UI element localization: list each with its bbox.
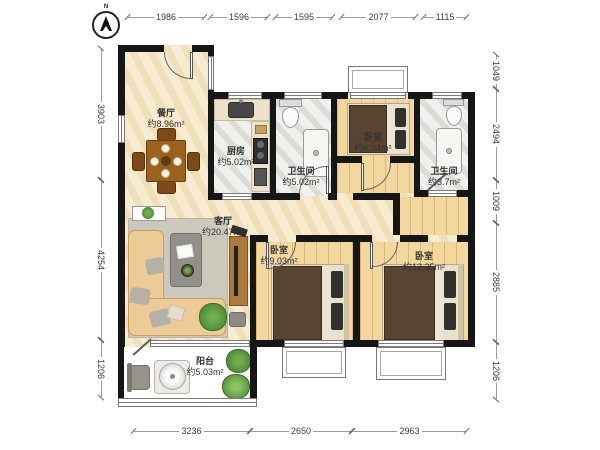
wall — [393, 193, 400, 235]
toilet-tank — [443, 99, 464, 106]
floor-plant-icon — [199, 303, 227, 331]
wall — [344, 340, 378, 347]
floor-plan: N — [0, 0, 600, 450]
dimension-top-2: 1596 — [210, 10, 268, 24]
wall — [331, 92, 337, 200]
wall — [444, 340, 470, 347]
kitchen-faucet — [239, 99, 243, 103]
washing-machine-dot — [170, 374, 175, 379]
dining-plate — [161, 144, 170, 153]
dining-chair-bottom — [157, 181, 176, 194]
wall — [408, 92, 432, 99]
wall — [457, 190, 470, 197]
wall — [118, 52, 125, 115]
cutting-board — [255, 125, 267, 134]
stove-burner — [257, 141, 264, 148]
tv-screen — [234, 246, 238, 296]
bay-sill — [350, 92, 406, 99]
coffee-table-plant — [181, 264, 194, 277]
room-label-living: 客厅约20.47m² — [202, 216, 244, 239]
kitchen-sink — [228, 102, 254, 118]
dining-plate — [173, 157, 182, 166]
dining-bowl — [161, 156, 171, 166]
wall — [270, 92, 276, 200]
bed-sheet — [435, 266, 443, 340]
wall — [468, 92, 475, 347]
wall — [208, 45, 214, 56]
bay-window-glass — [286, 351, 342, 374]
bay-sill — [284, 340, 344, 347]
balcony-chair — [130, 365, 150, 390]
dimension-bottom-3: 2963 — [352, 424, 467, 438]
dimension-right-3: 1009 — [489, 180, 503, 223]
room-label-dining: 餐厅约8.96m² — [147, 108, 184, 131]
dimension-top-1: 1986 — [127, 10, 205, 24]
compass-arrow-notch — [102, 26, 110, 32]
sofa-cushion — [129, 287, 151, 306]
bay-window-south-east — [376, 347, 446, 380]
bed-headboard — [344, 264, 349, 342]
bed-pillow — [395, 130, 406, 149]
wall — [296, 235, 372, 242]
bathroom-east-doorway-sill — [428, 190, 457, 197]
floor-vestibule — [398, 197, 468, 235]
dimension-right-2: 2494 — [489, 89, 503, 180]
shower-drain — [313, 150, 319, 156]
dimension-top-3: 1595 — [275, 10, 333, 24]
tv-cabinet — [229, 236, 248, 306]
dimension-right-1: 1049 — [489, 54, 503, 89]
shower-drain — [446, 148, 452, 154]
room-label-balcony: 阳台约5.03m² — [186, 356, 223, 379]
window — [228, 92, 262, 99]
dimension-left-3: 1206 — [94, 340, 108, 398]
bed-pillow — [444, 271, 456, 298]
room-label-bedroom-mid: 卧室约9.03m² — [260, 245, 297, 268]
balcony-sliding-window — [150, 340, 250, 347]
balcony-plant-icon — [222, 374, 250, 399]
bay-window-glass — [380, 351, 442, 376]
bed-blanket — [384, 266, 435, 340]
window — [432, 92, 462, 99]
dining-chair-left — [132, 152, 145, 171]
bed-headboard — [458, 264, 463, 342]
wall — [337, 156, 362, 163]
wall — [214, 193, 222, 200]
dining-chair-right — [187, 152, 200, 171]
balcony-outer-window — [118, 398, 257, 407]
wall — [214, 92, 228, 99]
bed-pillow — [331, 303, 343, 330]
stool — [229, 312, 246, 327]
dimension-top-4: 2077 — [341, 10, 416, 24]
wall — [390, 156, 414, 163]
compass-icon: N — [92, 11, 120, 39]
wall — [118, 347, 124, 400]
dimension-bottom-1: 3236 — [133, 424, 250, 438]
wall — [208, 90, 214, 200]
window — [118, 115, 125, 143]
dimension-right-4: 2885 — [489, 223, 503, 342]
bed-pillow — [444, 303, 456, 330]
wall — [256, 340, 284, 347]
balcony-chair-back — [127, 363, 132, 392]
wall — [400, 235, 428, 242]
balcony-plant-icon — [226, 349, 251, 373]
bed-pillow — [395, 108, 406, 127]
bed-pillow — [331, 271, 343, 298]
potted-plant-icon — [142, 207, 154, 219]
bay-window-north — [348, 66, 408, 93]
wall — [118, 143, 125, 347]
wall — [414, 190, 428, 197]
wall — [118, 45, 164, 52]
bay-window-glass — [352, 70, 404, 89]
wall — [457, 235, 470, 242]
bay-window-south-mid — [282, 347, 346, 378]
kitchen-appliance — [254, 168, 267, 186]
bay-sill — [378, 340, 444, 347]
dimension-right-5: 1206 — [489, 342, 503, 400]
sofa-cushion — [145, 257, 166, 276]
stove-burner — [257, 152, 264, 159]
wall — [353, 193, 393, 200]
wall — [250, 347, 257, 402]
room-label-bedroom-east: 卧室约12.35m² — [403, 251, 445, 274]
wall — [328, 193, 337, 200]
wall — [414, 92, 420, 197]
bed-sheet — [322, 266, 330, 340]
coffee-table — [170, 233, 202, 287]
wall — [250, 235, 256, 347]
dining-plate — [161, 169, 170, 178]
coffee-table-paper — [176, 244, 194, 259]
dimension-left-2: 4254 — [94, 180, 108, 340]
window — [284, 92, 322, 99]
bed-blanket — [273, 266, 322, 340]
room-label-bathroom-east: 卫生间约3.7m² — [428, 166, 460, 189]
toilet-tank — [279, 99, 302, 107]
dimension-left-1: 3903 — [94, 48, 108, 180]
dining-plate — [150, 157, 159, 166]
compass-north-label: N — [104, 4, 108, 10]
kitchen-doorway-sill — [222, 193, 252, 200]
wall — [252, 193, 300, 200]
window — [208, 56, 214, 90]
room-label-bathroom-mid: 卫生间约5.02m² — [282, 166, 319, 189]
dimension-top-5: 1115 — [423, 10, 467, 24]
wall — [353, 235, 360, 347]
room-label-kitchen: 厨房约5.02m² — [217, 146, 254, 169]
dimension-bottom-2: 2650 — [250, 424, 352, 438]
room-label-bedroom-north: 卧室约6.34m² — [354, 132, 391, 155]
